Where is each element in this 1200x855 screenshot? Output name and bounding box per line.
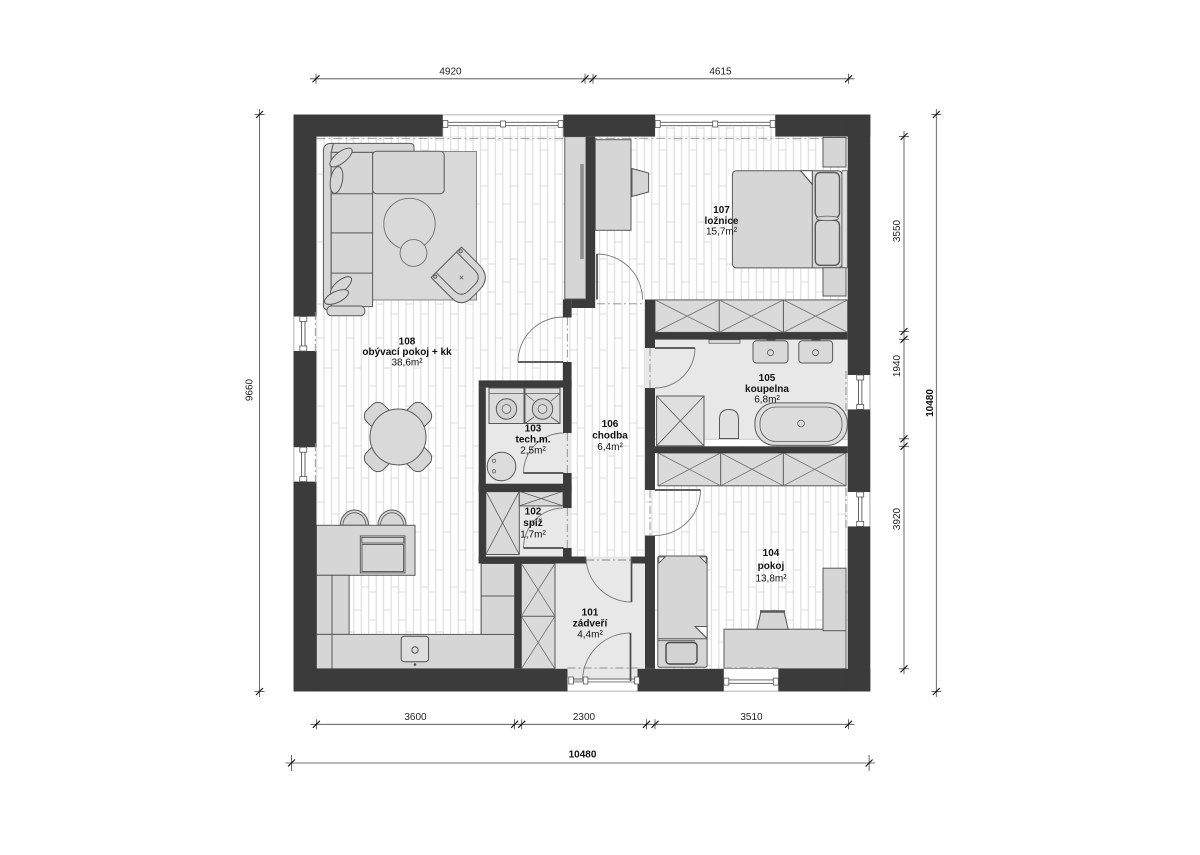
- svg-text:9660: 9660: [245, 378, 256, 401]
- svg-text:chodba: chodba: [592, 431, 628, 442]
- svg-text:2300: 2300: [573, 712, 596, 723]
- svg-text:10480: 10480: [925, 389, 936, 417]
- svg-text:106: 106: [602, 419, 619, 430]
- svg-text:spíž: spíž: [523, 518, 542, 529]
- svg-text:103: 103: [525, 424, 542, 435]
- svg-text:1940: 1940: [892, 354, 903, 377]
- svg-text:zádveří: zádveří: [573, 619, 609, 630]
- svg-text:ložnice: ložnice: [705, 216, 739, 227]
- svg-text:4,4m²: 4,4m²: [577, 630, 603, 641]
- svg-text:102: 102: [525, 507, 542, 518]
- svg-text:10480: 10480: [569, 750, 597, 761]
- svg-text:6,8m²: 6,8m²: [754, 395, 780, 406]
- svg-text:15,7m²: 15,7m²: [706, 227, 738, 238]
- svg-text:104: 104: [763, 548, 780, 559]
- svg-text:3600: 3600: [404, 712, 427, 723]
- svg-text:6,4m²: 6,4m²: [597, 442, 623, 453]
- svg-text:107: 107: [713, 205, 730, 216]
- svg-text:105: 105: [759, 373, 776, 384]
- svg-text:108: 108: [399, 337, 416, 348]
- svg-text:pokoj: pokoj: [758, 561, 785, 572]
- svg-text:koupelna: koupelna: [745, 384, 789, 395]
- svg-text:101: 101: [582, 608, 599, 619]
- svg-text:3550: 3550: [892, 219, 903, 242]
- svg-text:38,6m²: 38,6m²: [391, 358, 423, 369]
- svg-text:3510: 3510: [740, 712, 763, 723]
- svg-text:3920: 3920: [892, 507, 903, 530]
- svg-text:4920: 4920: [439, 67, 462, 78]
- svg-text:2,5m²: 2,5m²: [520, 446, 546, 457]
- svg-text:4615: 4615: [709, 67, 732, 78]
- svg-text:1,7m²: 1,7m²: [520, 530, 546, 541]
- svg-text:tech.m.: tech.m.: [515, 435, 550, 446]
- svg-text:obývací pokoj + kk: obývací pokoj + kk: [362, 347, 452, 358]
- svg-text:13,8m²: 13,8m²: [755, 574, 787, 585]
